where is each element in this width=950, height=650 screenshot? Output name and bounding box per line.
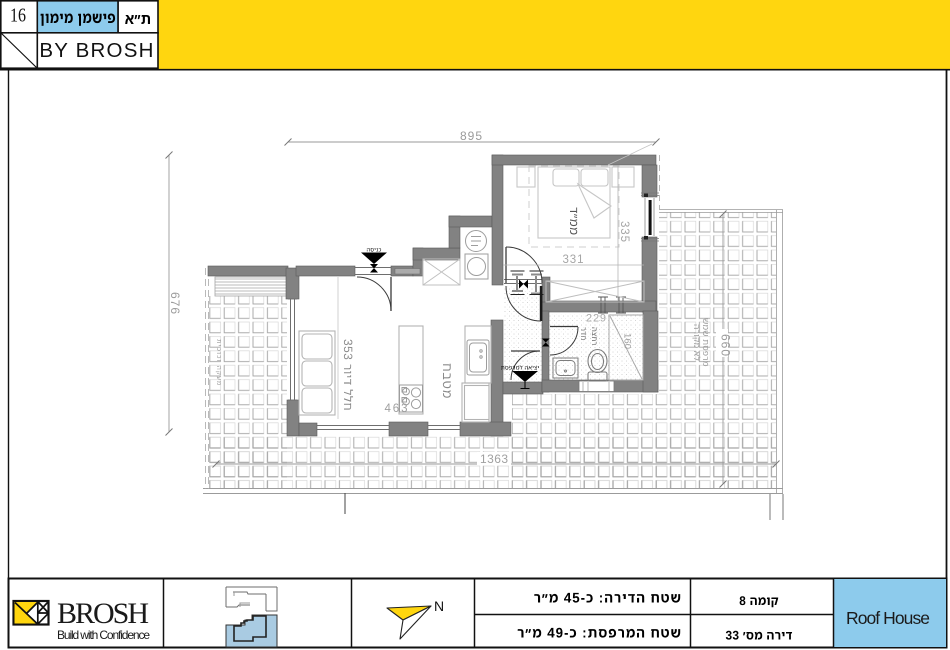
svg-text:331: 331	[563, 254, 584, 266]
svg-text:160: 160	[622, 333, 633, 349]
svg-text:335: 335	[618, 221, 630, 242]
svg-text:463: 463	[385, 403, 408, 415]
svg-text:676: 676	[168, 292, 182, 314]
svg-text:BY BROSH: BY BROSH	[39, 39, 154, 62]
svg-text:1363: 1363	[480, 452, 508, 466]
svg-text:660: 660	[719, 334, 733, 356]
svg-text:16: 16	[10, 4, 26, 26]
svg-text:N: N	[434, 598, 444, 614]
svg-text:BROSH: BROSH	[57, 597, 149, 630]
svg-text:Build with Confidence: Build with Confidence	[57, 628, 150, 642]
svg-text:229: 229	[586, 313, 606, 325]
svg-text:Roof House: Roof House	[846, 608, 930, 628]
svg-text:895: 895	[460, 129, 482, 143]
